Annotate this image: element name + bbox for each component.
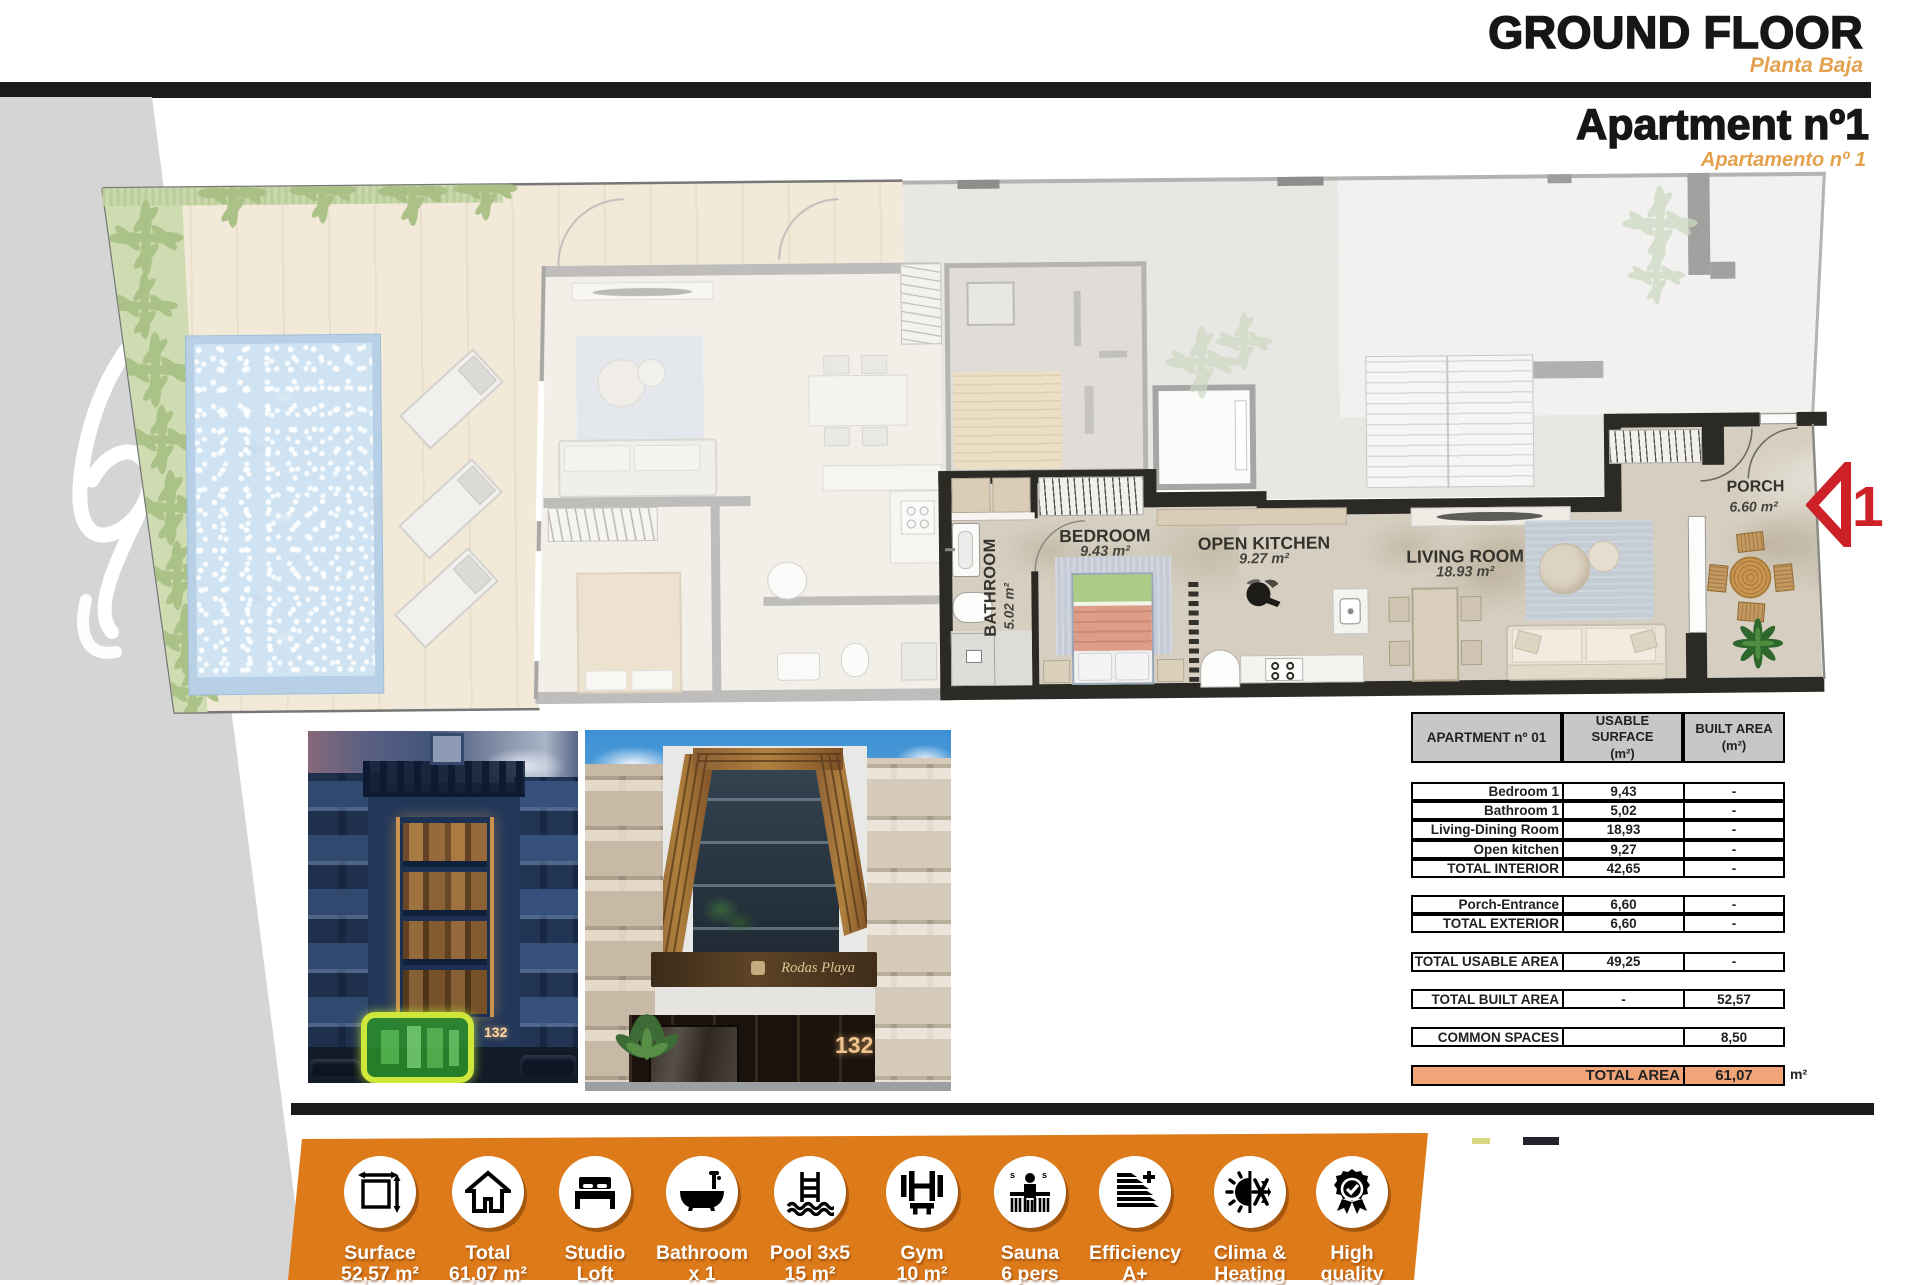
svg-text:s: s	[1010, 1170, 1015, 1180]
svg-text:1: 1	[1852, 475, 1884, 539]
svg-text:s: s	[1042, 1170, 1047, 1180]
